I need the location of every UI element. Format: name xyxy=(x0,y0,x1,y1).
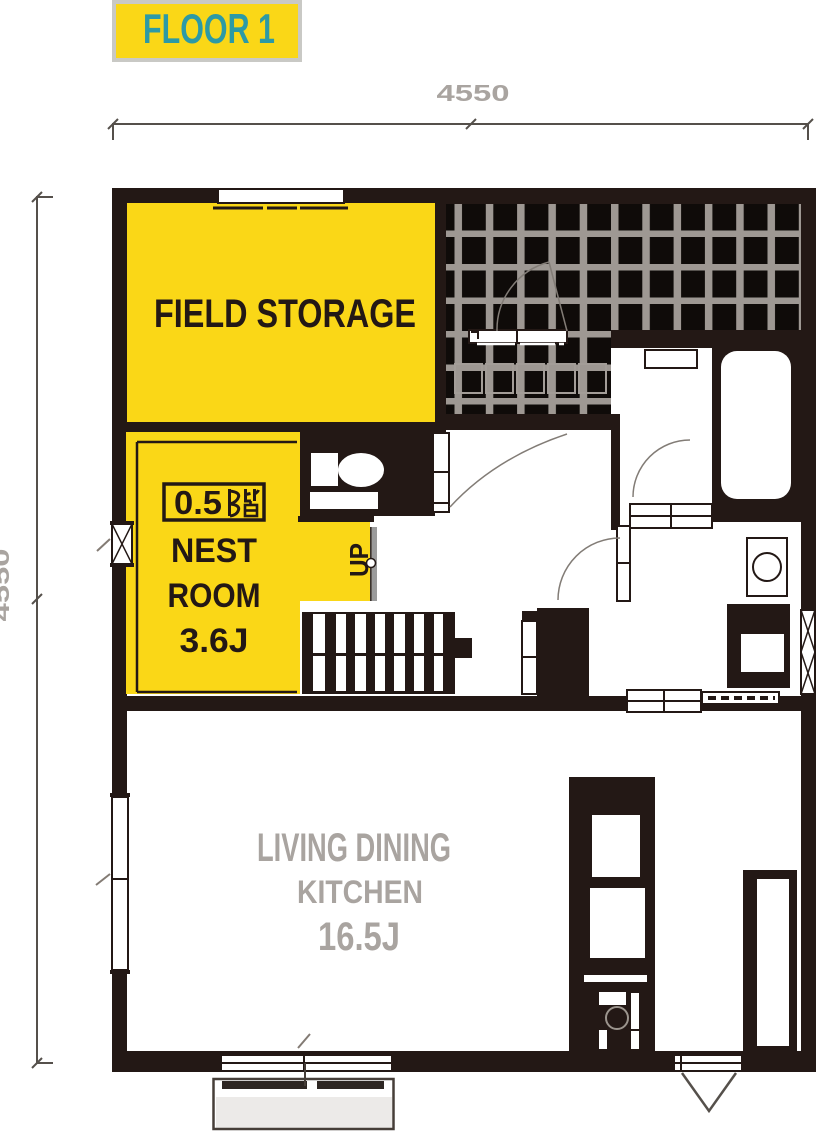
svg-text:4550: 4550 xyxy=(0,549,14,622)
svg-text:16.5J: 16.5J xyxy=(318,915,400,959)
svg-text:FLOOR 1: FLOOR 1 xyxy=(143,5,275,52)
svg-text:3.6J: 3.6J xyxy=(180,622,249,660)
svg-text:ROOM: ROOM xyxy=(168,577,261,615)
svg-text:LIVING DINING: LIVING DINING xyxy=(257,826,451,870)
svg-text:NEST: NEST xyxy=(171,532,257,570)
svg-text:0.5: 0.5 xyxy=(174,484,222,521)
svg-text:KITCHEN: KITCHEN xyxy=(297,874,423,910)
svg-text:4550: 4550 xyxy=(437,80,510,106)
svg-text:FIELD STORAGE: FIELD STORAGE xyxy=(154,292,416,336)
